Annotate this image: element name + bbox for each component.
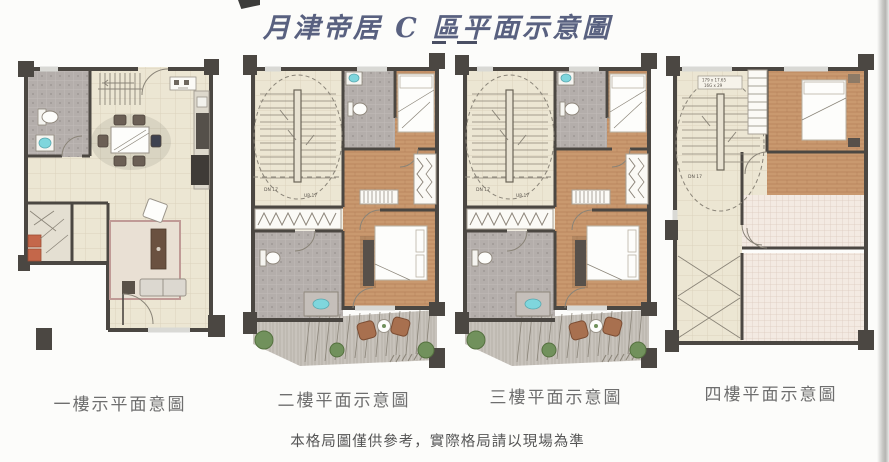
dresser-icon: [360, 190, 398, 204]
terrace-left: [675, 248, 742, 345]
dining-chair: [114, 115, 126, 125]
nightstand-icon: [848, 138, 860, 147]
dining-chair: [114, 156, 126, 166]
bed-icon: [802, 80, 846, 140]
stair-up-label: UP 17: [516, 193, 529, 199]
dining-chair: [133, 156, 145, 166]
tub-basin-icon: [313, 299, 329, 309]
stair-up-label: UP 17: [304, 193, 317, 199]
sink-icon: [349, 74, 359, 82]
bush-icon: [255, 331, 273, 349]
bath-sink-icon: [36, 135, 54, 151]
bush-icon: [330, 343, 344, 357]
side-table-icon: [122, 281, 135, 294]
dining-chair: [151, 135, 161, 147]
sink-icon: [561, 74, 571, 82]
dining-set: [91, 114, 171, 170]
window-band: [682, 67, 732, 72]
window-band: [567, 306, 607, 311]
closet-row-icon: [467, 209, 553, 229]
toilet-icon: [266, 252, 280, 264]
nightstand-icon: [848, 74, 860, 83]
title-underline-c: [432, 41, 446, 44]
floor-plan-1: [10, 53, 230, 353]
kitchen-label-box: [170, 77, 196, 90]
dining-chair: [98, 135, 108, 147]
window-band: [784, 67, 828, 72]
bush-icon: [542, 343, 556, 357]
patio-chair-icon: [356, 320, 377, 341]
floor-plan-3-drawing: DN 17 UP 17: [452, 50, 660, 375]
bed-icon: [375, 226, 427, 280]
window-band: [148, 328, 190, 333]
bush-icon: [467, 331, 485, 349]
stair-down-label: DN 17: [476, 187, 490, 193]
window-band: [477, 67, 493, 72]
title-underline-qu: [457, 41, 477, 44]
stair-rail: [506, 90, 513, 182]
stairs: [98, 73, 142, 105]
window-band: [355, 306, 395, 311]
toilet-icon: [478, 252, 492, 264]
stair-dimension-line2: 16G x 29: [704, 83, 723, 88]
floor-plan-1-drawing: [10, 53, 230, 353]
closet-shelves-icon: [748, 70, 767, 134]
disclaimer-note: 本格局圖僅供參考，實際格局請以現場為準: [0, 430, 875, 451]
floor-plan-2-drawing: DN 17 UP 17: [240, 50, 448, 375]
bench-icon: [575, 240, 586, 286]
page-title: 月津帝居 C 區平面示意圖: [0, 6, 875, 45]
patio-chair-icon: [390, 316, 411, 337]
floor-plan-4-drawing: 179 x 17.65 16G x 29 DN 17: [662, 50, 880, 360]
floor-plan-4: 179 x 17.65 16G x 29 DN 17: [662, 50, 880, 360]
floor-2-label: 二樓平面示意圖: [240, 386, 448, 411]
patio-chair-icon: [568, 320, 589, 341]
floor-plan-3: DN 17 UP 17: [452, 50, 660, 375]
window-band: [569, 67, 599, 72]
bush-icon: [630, 342, 646, 358]
closet-row-icon: [255, 209, 341, 229]
kitchen-counter: [191, 91, 209, 189]
dining-chair: [133, 115, 145, 125]
window-band: [265, 67, 281, 72]
bathroom-floor: [26, 69, 90, 157]
stair-rail: [294, 90, 301, 182]
floor-4-label: 四樓平面示意圖: [662, 380, 880, 405]
stair-rail: [717, 94, 724, 170]
bench-icon: [363, 240, 374, 286]
window-band: [357, 67, 387, 72]
bedroom-top: [398, 74, 434, 132]
kitchen-sink-icon: [197, 97, 207, 107]
floor-1-label: 一樓示平面意圖: [10, 390, 230, 415]
stove-icon: [196, 113, 209, 149]
bush-icon: [418, 342, 434, 358]
fridge-icon: [191, 155, 209, 185]
wardrobe-icon: [626, 154, 648, 204]
toilet-icon: [565, 103, 579, 115]
floor-plan-2: DN 17 UP 17: [240, 50, 448, 375]
toilet-icon: [353, 103, 367, 115]
stair-down-label: DN 17: [264, 187, 278, 193]
tub-basin-icon: [525, 299, 541, 309]
patio-chair-icon: [602, 316, 623, 337]
bedroom-top: [610, 74, 646, 132]
stair-down-label: DN 17: [688, 174, 702, 180]
bed-icon: [587, 226, 639, 280]
dresser-icon: [572, 190, 610, 204]
terrace-right: [742, 253, 866, 345]
stair-dimension-line1: 179 x 17.65: [702, 78, 726, 83]
floor-3-label: 三樓平面示意圖: [452, 383, 660, 408]
wardrobe-icon: [414, 154, 436, 204]
